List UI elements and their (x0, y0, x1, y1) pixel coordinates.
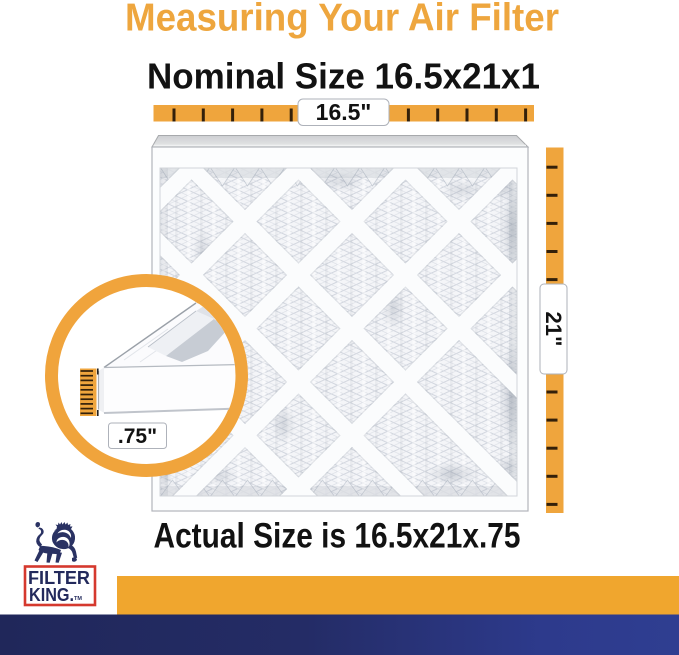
svg-text:KING.: KING. (29, 584, 74, 605)
svg-text:21": 21" (541, 312, 566, 347)
svg-text:Measuring Your Air Filter: Measuring Your Air Filter (125, 0, 559, 40)
svg-text:TM: TM (74, 596, 82, 602)
svg-text:16.5": 16.5" (316, 99, 372, 125)
svg-text:Actual Size is 16.5x21x.75: Actual Size is 16.5x21x.75 (154, 516, 521, 556)
svg-text:Nominal Size 16.5x21x1: Nominal Size 16.5x21x1 (147, 55, 540, 96)
svg-text:.75": .75" (118, 425, 157, 448)
